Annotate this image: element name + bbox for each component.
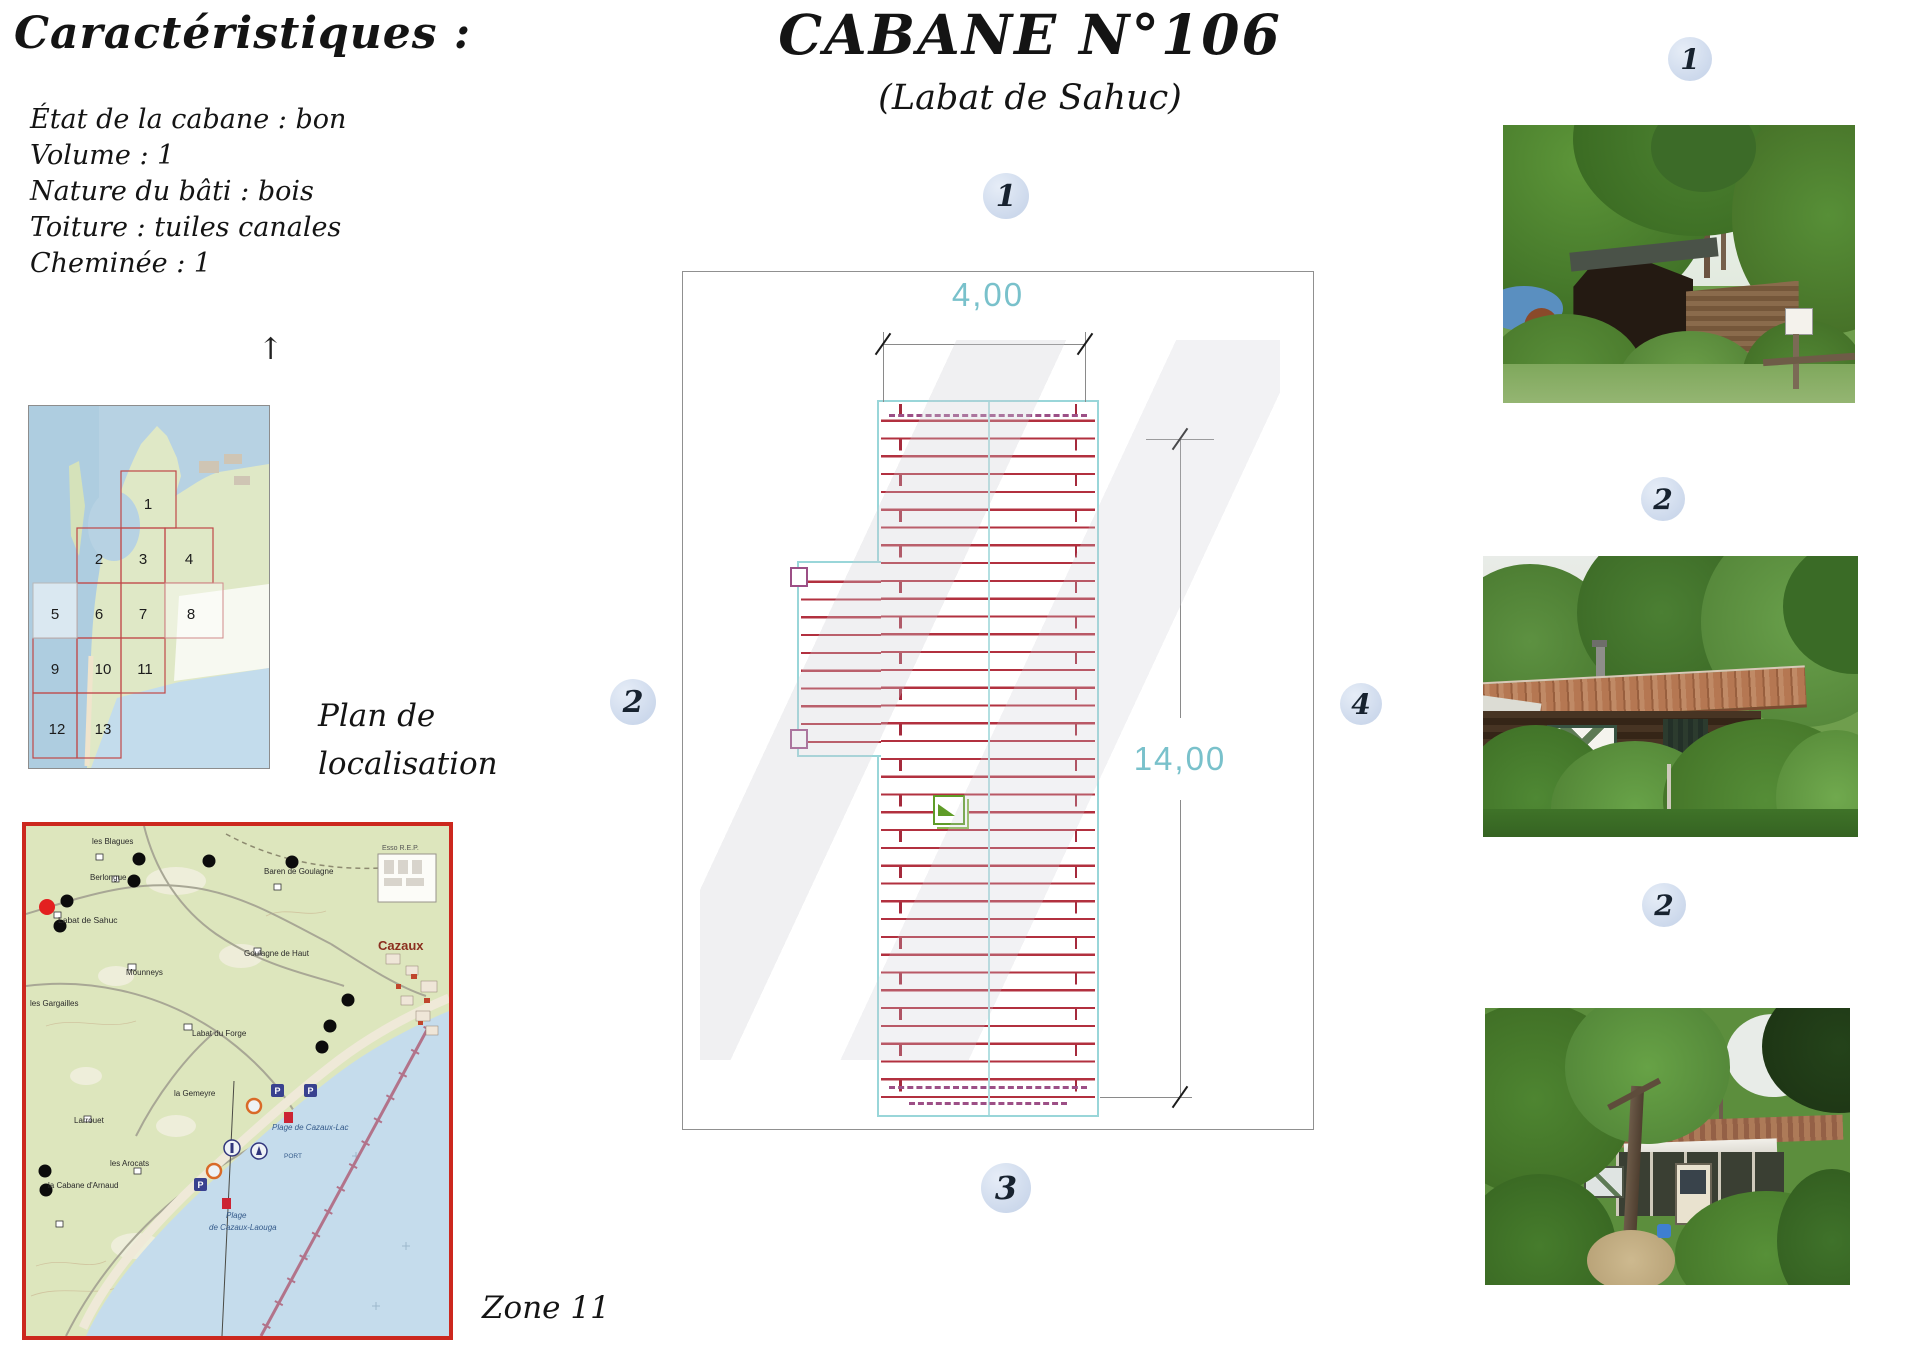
- dashed-outline-top: [889, 414, 1087, 417]
- svg-text:13: 13: [95, 721, 112, 738]
- plan-annex: [797, 561, 881, 757]
- sailing-icon: [251, 1143, 267, 1159]
- garden-path: [1587, 1230, 1675, 1285]
- svg-text:de Cazaux-Laouga: de Cazaux-Laouga: [209, 1223, 277, 1232]
- parking-icon: P: [304, 1084, 317, 1097]
- svg-text:2: 2: [95, 551, 103, 568]
- photo-badge-2: 2: [1641, 477, 1685, 521]
- svg-text:Esso R.E.P.: Esso R.E.P.: [382, 845, 419, 852]
- svg-text:8: 8: [187, 606, 195, 623]
- page-subtitle: (Labat de Sahuc): [755, 78, 1305, 118]
- characteristic-nature: Nature du bâti : bois: [30, 174, 346, 210]
- location-map-caption-line2: localisation: [318, 746, 498, 782]
- svg-text:6: 6: [95, 606, 103, 623]
- svg-text:les Gargailles: les Gargailles: [30, 999, 78, 1008]
- blue-bucket: [1657, 1224, 1672, 1238]
- white-sign: [1785, 308, 1813, 335]
- north-arrow-icon: ↑: [258, 332, 283, 367]
- characteristic-volume: Volume : 1: [30, 138, 346, 174]
- dashed-outline-bottom2: [909, 1102, 1067, 1105]
- svg-text:Cazaux: Cazaux: [378, 938, 424, 953]
- svg-text:les Blagues: les Blagues: [92, 837, 133, 846]
- cabin-photo-1: [1503, 125, 1855, 403]
- chimney-pipe: [1596, 643, 1605, 680]
- photo-badge-3: 2: [1642, 883, 1686, 927]
- characteristic-toiture: Toiture : tuiles canales: [30, 210, 346, 246]
- svg-text:PORT: PORT: [284, 1153, 302, 1160]
- svg-text:Berlongue: Berlongue: [90, 873, 127, 882]
- entry-symbol-icon: [933, 795, 965, 825]
- zone-label: Zone 11: [482, 1290, 610, 1326]
- cabin-106-location-dot: [39, 899, 55, 915]
- characteristics-list: État de la cabane : bon Volume : 1 Natur…: [30, 102, 346, 282]
- dimension-line: [1180, 438, 1181, 718]
- characteristics-heading: Caractéristiques :: [14, 8, 471, 59]
- no-entry-icon: [247, 1099, 261, 1113]
- svg-text:9: 9: [51, 661, 59, 678]
- dimension-line: [883, 344, 1085, 345]
- svg-text:12: 12: [49, 721, 66, 738]
- svg-text:P: P: [274, 1086, 280, 1096]
- post-symbol: [790, 729, 808, 749]
- svg-text:Plage de Cazaux-Lac: Plage de Cazaux-Lac: [272, 1123, 349, 1132]
- location-map: 1 2 3 4 5 6 7 8 9 10 11 12 13: [28, 405, 270, 769]
- photo-badge-1: 1: [1668, 37, 1712, 81]
- svg-text:Labat de Sahuc: Labat de Sahuc: [58, 915, 118, 925]
- document-page: Caractéristiques : État de la cabane : b…: [0, 0, 1920, 1360]
- svg-text:les Arocats: les Arocats: [110, 1159, 149, 1168]
- width-dimension: 4,00: [923, 276, 1053, 314]
- svg-text:la Cabane d'Arnaud: la Cabane d'Arnaud: [48, 1181, 118, 1190]
- characteristic-cheminee: Cheminée : 1: [30, 246, 346, 282]
- svg-text:Labat du Forge: Labat du Forge: [192, 1029, 247, 1038]
- roof-ridge-line: [988, 402, 990, 1115]
- svg-text:7: 7: [139, 606, 147, 623]
- svg-text:P: P: [307, 1086, 313, 1096]
- svg-text:3: 3: [139, 551, 147, 568]
- svg-text:1: 1: [144, 496, 152, 513]
- zone-map: P P P le: [22, 822, 453, 1340]
- cabin-photo-2: [1483, 556, 1858, 837]
- post-symbol: [790, 567, 808, 587]
- lighthouse-icon: [224, 1140, 240, 1156]
- location-map-caption-line1: Plan de: [318, 698, 435, 734]
- location-map-graphic: 1 2 3 4 5 6 7 8 9 10 11 12 13: [29, 406, 269, 768]
- view-marker-2: 2: [610, 679, 656, 725]
- svg-text:Goulagne de Haut: Goulagne de Haut: [244, 949, 310, 958]
- svg-text:Plage: Plage: [226, 1211, 247, 1220]
- page-title: CABANE N°106: [755, 2, 1305, 67]
- svg-text:Mounneys: Mounneys: [126, 968, 163, 977]
- characteristic-etat: État de la cabane : bon: [30, 102, 346, 138]
- svg-text:Baren de Goulagne: Baren de Goulagne: [264, 867, 334, 876]
- zone-map-graphic: P P P le: [26, 826, 449, 1336]
- plan-main-roof: [877, 400, 1099, 1117]
- cabin-photo-3: [1485, 1008, 1850, 1285]
- no-entry-icon: [207, 1164, 221, 1178]
- height-dimension: 14,00: [1115, 740, 1245, 778]
- svg-text:4: 4: [185, 551, 193, 568]
- svg-text:la Gemeyre: la Gemeyre: [174, 1089, 216, 1098]
- dashed-outline-bottom: [889, 1086, 1087, 1089]
- view-marker-1: 1: [983, 173, 1029, 219]
- svg-text:P: P: [197, 1180, 203, 1190]
- parking-icon: P: [194, 1178, 207, 1191]
- svg-text:10: 10: [95, 661, 112, 678]
- svg-text:11: 11: [137, 661, 153, 678]
- parking-icon: P: [271, 1084, 284, 1097]
- view-marker-3: 3: [981, 1163, 1031, 1213]
- view-marker-4: 4: [1340, 683, 1382, 725]
- svg-text:5: 5: [51, 606, 59, 623]
- svg-text:Larrouet: Larrouet: [74, 1116, 105, 1125]
